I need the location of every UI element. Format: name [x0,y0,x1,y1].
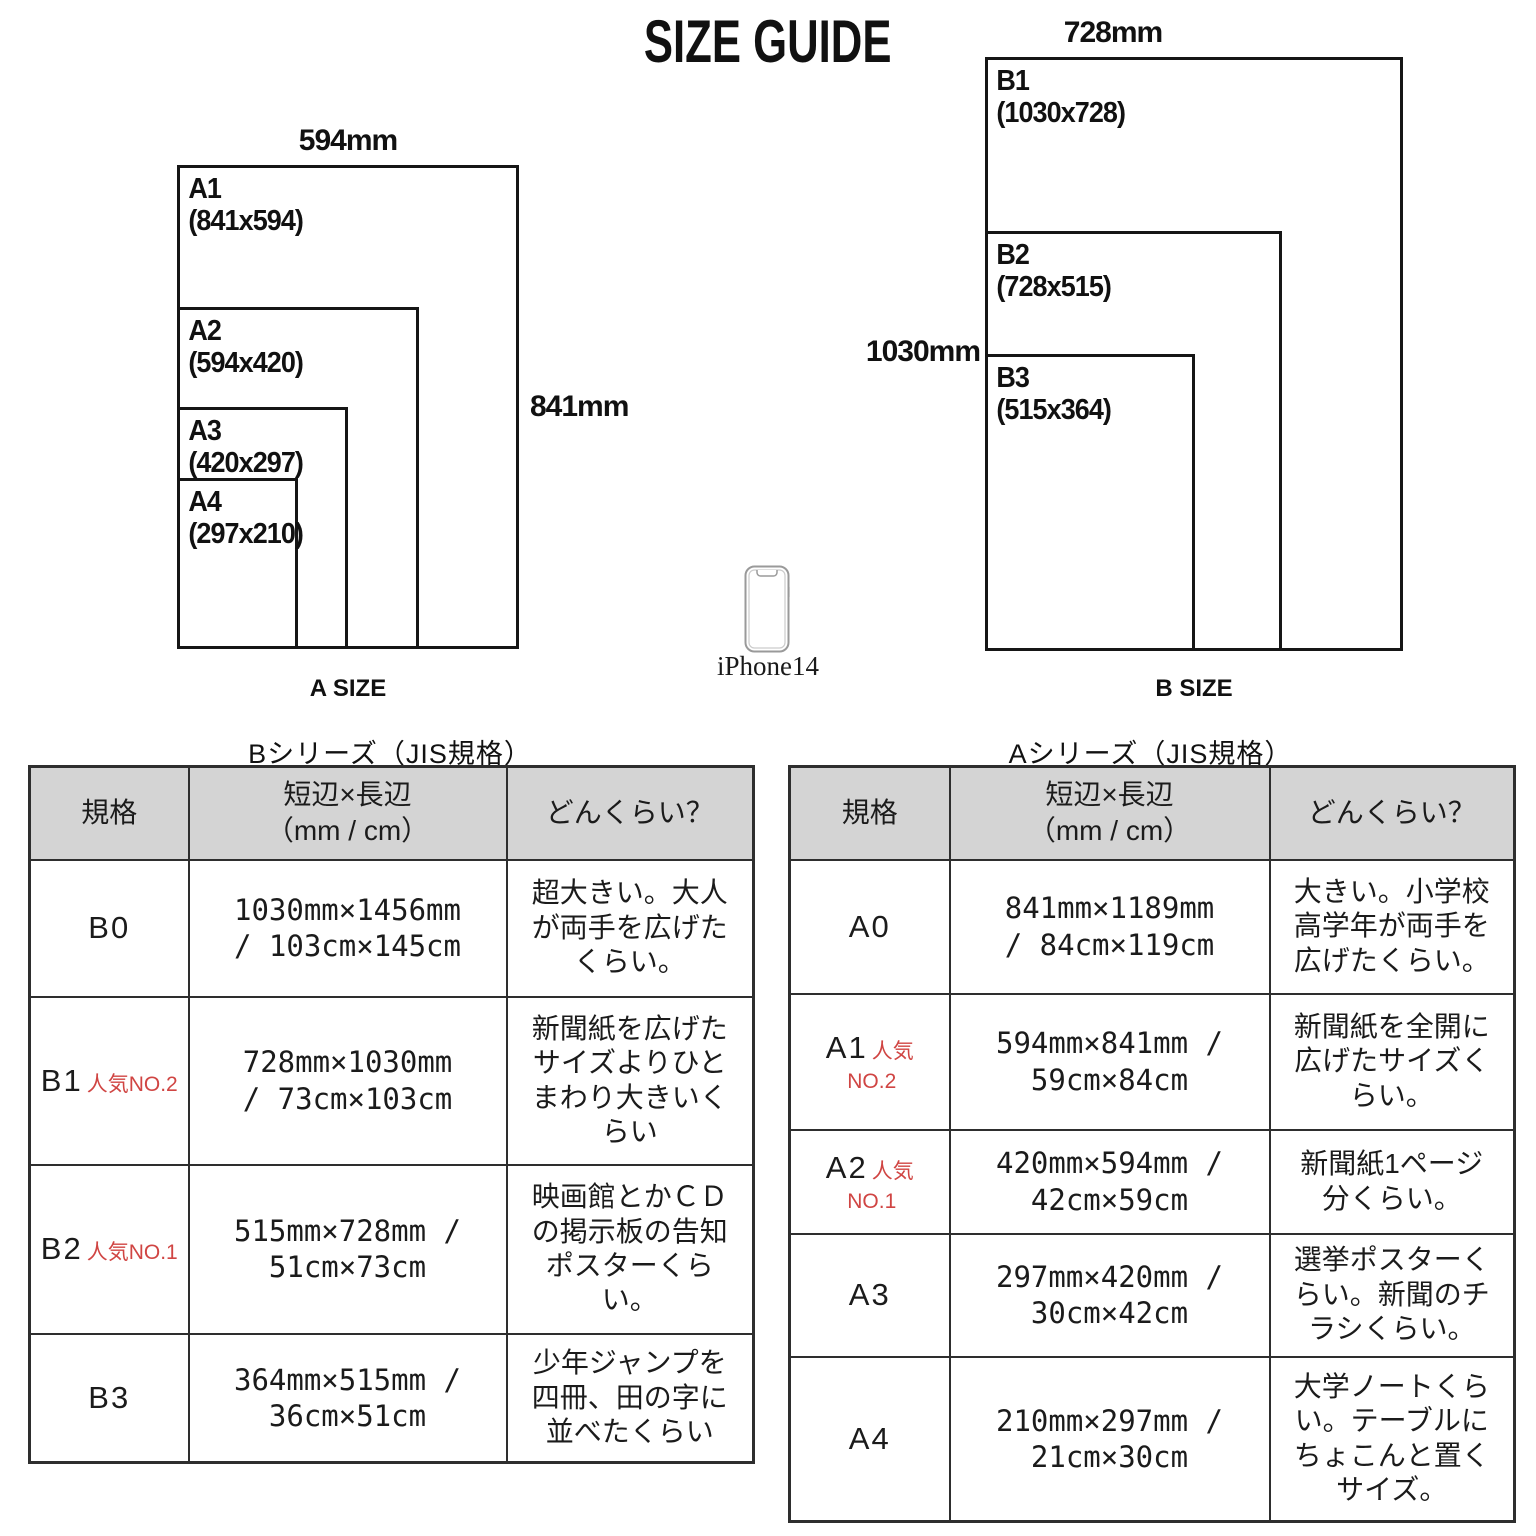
table-row: B1人気NO.2728mm×1030mm / 73cm×103cm新聞紙を広げた… [30,997,754,1165]
standard-cell: B2人気NO.1 [30,1165,189,1334]
sheet-a2-dims: (594x420) [188,348,399,380]
standard-line: B1人気NO.2 [31,1063,188,1099]
a-size-caption: A SIZE [177,675,519,703]
a-series-header-row: 規格 短辺×長辺 （mm / cm） どんくらい？ [790,767,1515,860]
table-row: B2人気NO.1515mm×728mm / 51cm×73cm映画館とかＣＤ の… [30,1165,754,1334]
standard-cell: A3 [790,1234,950,1357]
a-series-table-body: A0841mm×1189mm / 84cm×119cm大きい。小学校 高学年が両… [790,860,1515,1522]
sheet-b3-dims: (515x364) [996,395,1177,427]
header-dimensions: 短辺×長辺 （mm / cm） [950,767,1270,860]
dimensions-cell: 841mm×1189mm / 84cm×119cm [950,860,1270,994]
sheet-a4-label: A4 (297x210) [180,481,287,551]
standard-line: B3 [31,1380,188,1416]
description-cell: 選挙ポスターく らい。新聞のチ ラシくらい。 [1270,1234,1515,1357]
standard-name: B3 [88,1380,130,1415]
description-cell: 少年ジャンプを 四冊、田の字に 並べたくらい [507,1334,754,1463]
popular-badge: 人気NO.2 [87,1073,178,1096]
table-row: B01030mm×1456mm / 103cm×145cm超大きい。大人 が両手… [30,860,754,997]
sheet-a1-dims: (841x594) [188,206,492,238]
sheet-a3-dims: (420x297) [188,448,333,480]
b-size-caption: B SIZE [985,675,1403,703]
sheet-a3-label: A3 (420x297) [180,410,333,480]
description-cell: 大きい。小学校 高学年が両手を 広げたくらい。 [1270,860,1515,994]
sheet-b1-name: B1 [996,65,1029,97]
standard-name: A1 [826,1030,868,1065]
table-row: A1人気NO.2594mm×841mm / 59cm×84cm新聞紙を全開に 広… [790,994,1515,1130]
standard-line: A1人気 [791,1030,949,1066]
standard-cell: A1人気NO.2 [790,994,950,1130]
popular-badge-rank: NO.2 [795,1070,949,1094]
description-cell: 映画館とかＣＤ の掲示板の告知 ポスターくら い。 [507,1165,754,1334]
standard-line: A3 [791,1277,949,1313]
standard-cell: B3 [30,1334,189,1463]
a-series-table: 規格 短辺×長辺 （mm / cm） どんくらい？ A0841mm×1189mm… [788,765,1516,1523]
header-description: どんくらい？ [1270,767,1515,860]
sheet-a4: A4 (297x210) [177,478,298,649]
sheet-a1-name: A1 [188,173,221,205]
header-description: どんくらい？ [507,767,754,860]
table-row: A0841mm×1189mm / 84cm×119cm大きい。小学校 高学年が両… [790,860,1515,994]
standard-name: A3 [849,1277,891,1312]
a-height-dimension-label: 841mm [530,390,628,424]
header-standard: 規格 [30,767,189,860]
b-series-table: 規格 短辺×長辺 （mm / cm） どんくらい？ B01030mm×1456m… [28,765,755,1464]
sheet-a3-name: A3 [188,415,221,447]
popular-badge: 人気 [872,1040,914,1063]
description-cell: 新聞紙1ページ 分くらい。 [1270,1130,1515,1234]
b-series-header-row: 規格 短辺×長辺 （mm / cm） どんくらい？ [30,767,754,860]
sheet-b2-name: B2 [996,239,1029,271]
dimensions-cell: 515mm×728mm / 51cm×73cm [189,1165,507,1334]
dimensions-cell: 728mm×1030mm / 73cm×103cm [189,997,507,1165]
sheet-a1-label: A1 (841x594) [180,168,492,238]
standard-name: A0 [849,909,891,944]
sheet-b2-label: B2 (728x515) [988,234,1259,304]
header-dimensions: 短辺×長辺 （mm / cm） [189,767,507,860]
standard-cell: B0 [30,860,189,997]
dimensions-cell: 210mm×297mm / 21cm×30cm [950,1357,1270,1522]
sheet-a2-name: A2 [188,315,221,347]
description-cell: 超大きい。大人 が両手を広げた くらい。 [507,860,754,997]
sheet-b3: B3 (515x364) [985,354,1195,651]
table-row: A4210mm×297mm / 21cm×30cm大学ノートくら い。テーブルに… [790,1357,1515,1522]
sheet-b3-label: B3 (515x364) [988,357,1178,427]
standard-line: A4 [791,1421,949,1457]
description-cell: 新聞紙を全開に 広げたサイズく らい。 [1270,994,1515,1130]
b-width-dimension-label: 728mm [985,16,1241,50]
iphone-outline-icon [744,565,790,653]
standard-cell: A0 [790,860,950,994]
standard-name: A4 [849,1421,891,1456]
sheet-b1-dims: (1030x728) [996,98,1371,130]
standard-cell: B1人気NO.2 [30,997,189,1165]
standard-name: B0 [88,910,130,945]
popular-badge: 人気NO.1 [87,1241,178,1264]
standard-cell: A4 [790,1357,950,1522]
table-row: A2人気NO.1420mm×594mm / 42cm×59cm新聞紙1ページ 分… [790,1130,1515,1234]
dimensions-cell: 364mm×515mm / 36cm×51cm [189,1334,507,1463]
size-guide-infographic: SIZE GUIDE 594mm A1 (841x594) A2 (594x42… [0,0,1536,1536]
standard-name: B2 [41,1231,83,1266]
header-standard: 規格 [790,767,950,860]
dimensions-cell: 594mm×841mm / 59cm×84cm [950,994,1270,1130]
popular-badge: 人気 [872,1160,914,1183]
standard-line: B2人気NO.1 [31,1231,188,1267]
standard-cell: A2人気NO.1 [790,1130,950,1234]
sheet-a4-name: A4 [188,486,221,518]
description-cell: 大学ノートくら い。テーブルに ちょこんと置く サイズ。 [1270,1357,1515,1522]
table-row: B3364mm×515mm / 36cm×51cm少年ジャンプを 四冊、田の字に… [30,1334,754,1463]
standard-name: A2 [826,1150,868,1185]
standard-line: A2人気 [791,1150,949,1186]
sheet-b3-name: B3 [996,362,1029,394]
standard-name: B1 [41,1063,83,1098]
a-width-dimension-label: 594mm [177,124,519,158]
b-series-table-body: B01030mm×1456mm / 103cm×145cm超大きい。大人 が両手… [30,860,754,1463]
standard-line: A0 [791,909,949,945]
dimensions-cell: 420mm×594mm / 42cm×59cm [950,1130,1270,1234]
standard-line: B0 [31,910,188,946]
dimensions-cell: 297mm×420mm / 30cm×42cm [950,1234,1270,1357]
iphone-label: iPhone14 [668,651,868,682]
sheet-b2-dims: (728x515) [996,272,1258,304]
sheet-b1-label: B1 (1030x728) [988,60,1371,130]
iphone-icon [744,565,790,653]
sheet-a2-label: A2 (594x420) [180,310,399,380]
b-height-dimension-label: 1030mm [840,335,980,369]
dimensions-cell: 1030mm×1456mm / 103cm×145cm [189,860,507,997]
page-title-text: SIZE GUIDE [644,6,892,76]
sheet-a4-dims: (297x210) [188,519,287,551]
table-row: A3297mm×420mm / 30cm×42cm選挙ポスターく らい。新聞のチ… [790,1234,1515,1357]
description-cell: 新聞紙を広げた サイズよりひと まわり大きいく らい [507,997,754,1165]
popular-badge-rank: NO.1 [795,1190,949,1214]
